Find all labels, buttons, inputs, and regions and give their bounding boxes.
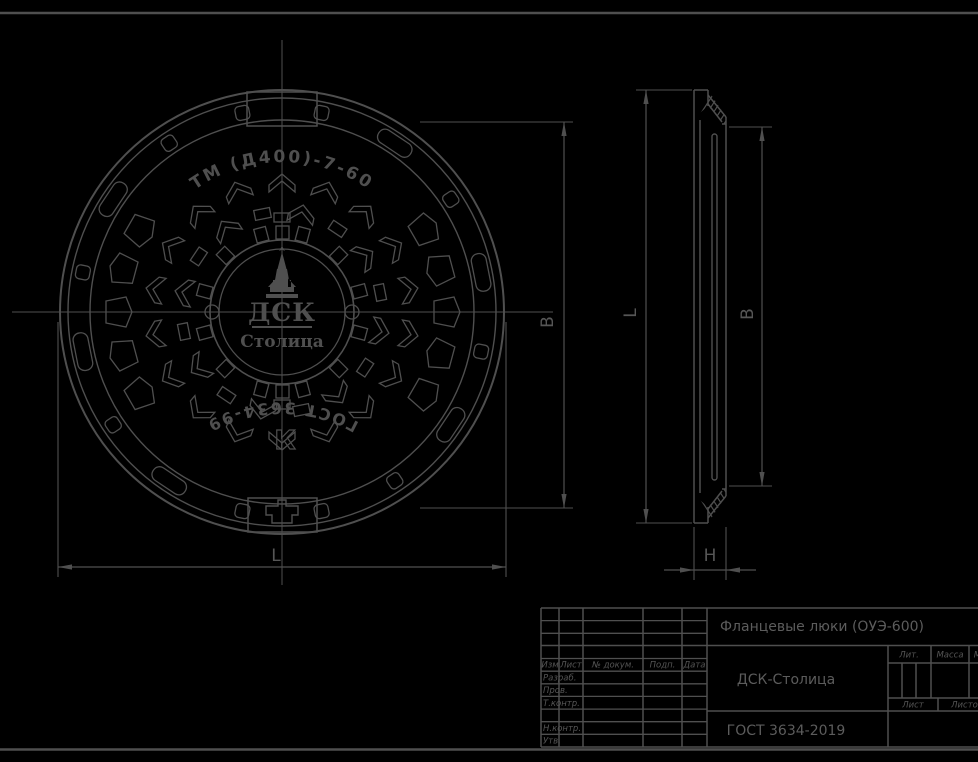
dim-label-front-L: L — [271, 546, 281, 566]
tb-masshtab: Масштаб — [974, 651, 978, 661]
tb-row-tkontr: Т.контр. — [543, 699, 580, 709]
side-section-profile — [690, 84, 768, 529]
logo-text-dsk: ДСК — [248, 298, 316, 327]
tb-row-prov: Пров. — [543, 686, 568, 696]
tb-col-izm: Изм — [541, 661, 559, 671]
title-standard: ГОСТ 3634-2019 — [727, 723, 846, 739]
tb-row-utv: Утв. — [543, 737, 561, 747]
title-block: Фланцевые люки (ОУЭ-600) ДСК-Столица ГОС… — [541, 619, 978, 747]
dim-label-front-B: В — [538, 316, 558, 328]
drawing-frame — [0, 13, 978, 750]
tb-row-razrab: Разраб. — [543, 674, 576, 684]
manufacturer-logo: ДСК Столица — [240, 246, 324, 352]
cover-class-letter: К — [274, 426, 295, 456]
tb-massa: Масса — [936, 651, 963, 661]
dim-label-side-B: В — [738, 308, 758, 320]
technical-drawing: ДСК Столица ТМ (Д400)-7-60 ГОСТ 3634-99 … — [0, 0, 978, 762]
tb-lit: Лит. — [898, 651, 919, 661]
tb-col-podp: Подп. — [650, 661, 676, 671]
kremlin-tower-icon — [266, 246, 298, 298]
tb-sheets: Листов — [950, 701, 978, 711]
logo-text-stolitsa: Столица — [240, 332, 324, 352]
tb-col-list: Лист — [559, 661, 583, 671]
tb-col-data: Дата — [682, 661, 705, 671]
title-doc-name: Фланцевые люки (ОУЭ-600) — [720, 619, 924, 635]
drawing-canvas: ДСК Столица ТМ (Д400)-7-60 ГОСТ 3634-99 … — [0, 0, 978, 762]
tb-row-nkontr: Н.контр. — [543, 724, 581, 734]
tb-sheet: Лист — [901, 701, 925, 711]
title-company: ДСК-Столица — [737, 672, 835, 688]
dimension-lines — [58, 90, 772, 580]
dim-label-side-L: L — [621, 308, 641, 318]
dim-label-side-H: Н — [704, 546, 717, 566]
tb-col-docnum: № докум. — [591, 661, 634, 671]
